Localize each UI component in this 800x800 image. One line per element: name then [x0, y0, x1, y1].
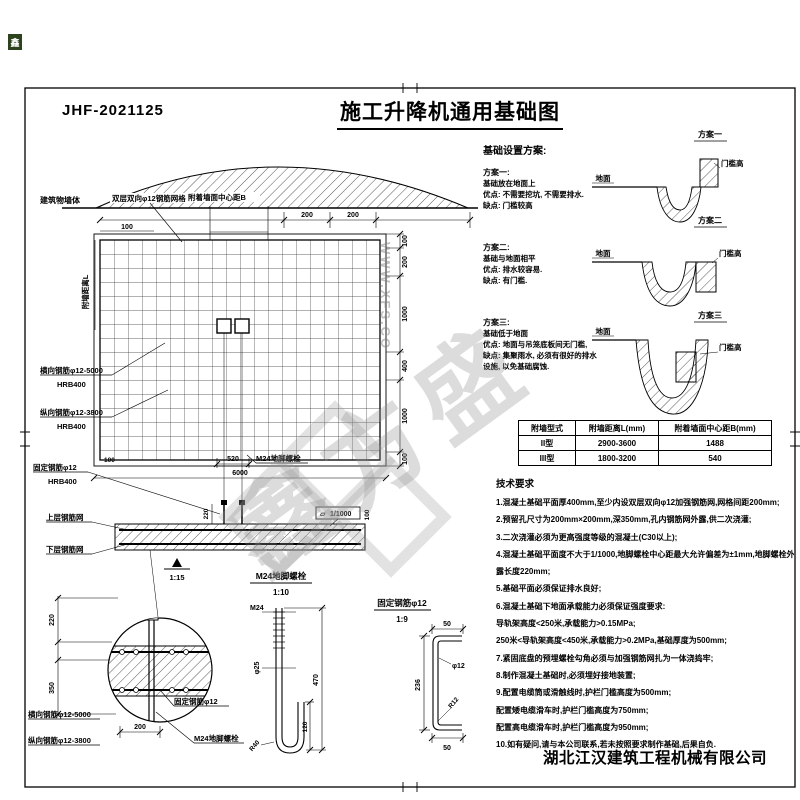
- tech-heading: 技术要求: [496, 476, 794, 490]
- mast-base-plate-left: [217, 319, 231, 333]
- rebar-h-grade: HRB400: [57, 380, 86, 389]
- wall-dist-label: 附墙距离L: [80, 274, 90, 309]
- mast-base-plate-right: [235, 319, 249, 333]
- sketch1-sill-label: 门槛高: [721, 158, 744, 168]
- attachment-table: 附墙型式 附墙距离L(mm) 附着墙面中心距B(mm) II型 2900-360…: [518, 420, 772, 466]
- bolt-hook-dim: 120: [302, 721, 309, 732]
- tech-requirements: 技术要求 1.混凝土基础平面厚400mm,至少内设双层双向φ12加强钢筋网,网格…: [496, 476, 794, 753]
- dim-right-1: 200: [402, 256, 409, 268]
- table-row: II型 2900-3600 1488: [519, 436, 772, 451]
- dim-200: 200: [134, 724, 146, 731]
- rebar-f-grade: HRB400: [48, 477, 77, 486]
- scheme-3-line: 优点: 地面与吊笼底板间无门槛,: [483, 339, 613, 350]
- plan-top-dims: [97, 212, 473, 231]
- plan-view: 建筑物墙体 双层双向φ12钢筋网格 附着墙面中心距B 200 200 100: [33, 167, 478, 520]
- scheme-sketch-1: 方案一 地面 门槛高: [592, 129, 744, 222]
- table-header: 附墙距离L(mm): [576, 421, 659, 436]
- tech-line: 2.预留孔尺寸为200mm×200mm,深350mm,孔内钢筋网外露,供二次浇灌…: [496, 511, 794, 528]
- scheme-2-line: 缺点: 有门槛.: [483, 275, 613, 286]
- scheme-2: 方案二: 基础与地面相平 优点: 排水较容易. 缺点: 有门槛.: [483, 242, 613, 286]
- dim-protrude: 220: [203, 508, 210, 519]
- fix-detail-title: 固定钢筋φ12: [377, 598, 427, 608]
- tech-line: 6.混凝土基础下地面承载能力必须保证强度要求:: [496, 598, 794, 615]
- corner-detail: 220 350 200 横向钢筋φ12-5000 纵向钢筋φ12-3800 固定…: [28, 595, 244, 745]
- wall-label: 建筑物墙体: [39, 195, 81, 205]
- sketch1-title: 方案一: [698, 129, 722, 139]
- center-b-label: 附着墙面中心距B: [188, 192, 246, 202]
- tech-line: 露长度220mm;: [496, 563, 794, 580]
- scheme-2-line: 优点: 排水较容易.: [483, 264, 613, 275]
- mesh-label: 双层双向φ12钢筋网格: [112, 193, 186, 203]
- scheme-3-title: 方案三:: [483, 317, 613, 328]
- upper-mesh-label: 上层钢筋网: [46, 512, 84, 522]
- section-slab: [115, 524, 365, 550]
- center-b-dim: [210, 206, 268, 240]
- table-header: 附墙型式: [519, 421, 576, 436]
- fix-detail-scale: 1:9: [396, 615, 408, 624]
- dim-350: 350: [49, 682, 56, 694]
- section-scale: 1:15: [169, 573, 184, 582]
- tech-line: 1.混凝土基础平面厚400mm,至少内设双层双向φ12加强钢筋网,网格间距200…: [496, 494, 794, 511]
- scheme-3: 方案三: 基础低于地面 优点: 地面与吊笼底板间无门槛, 缺点: 集聚雨水, 必…: [483, 317, 613, 372]
- rebar-grid: [100, 240, 380, 460]
- tech-line: 导轨架高度<250米,承载能力>0.15MPa;: [496, 615, 794, 632]
- tech-line: 3.二次浇灌必须为更高强度等级的混凝土(C30以上);: [496, 529, 794, 546]
- section-view: 220 ▱ 1/1000 100 上层钢筋网 下层钢筋网 1:15: [46, 500, 371, 617]
- tech-line: 配置高电缆滑车时,护栏门槛高度为950mm;: [496, 719, 794, 736]
- fix-height-dim: 236: [415, 679, 422, 691]
- dim-right-2: 1000: [402, 306, 409, 322]
- bolt-height-dim: 470: [313, 674, 320, 686]
- table-cell: II型: [519, 436, 576, 451]
- fix-bottom-dim: 50: [443, 745, 451, 752]
- tech-line: 250米<导轨架高度<450米,承载能力>0.2MPa,基础厚度为500mm;: [496, 632, 794, 649]
- bolt-detail-scale: 1:10: [273, 588, 290, 597]
- rebar-f-label: 固定钢筋φ12: [33, 462, 77, 472]
- scheme-1-line: 缺点: 门槛较高: [483, 200, 613, 211]
- sketch3-sill-label: 门槛高: [719, 342, 742, 352]
- tech-line: 8.制作混凝土基础时,必须埋好接地装置;: [496, 667, 794, 684]
- table-row: III型 1800-3200 540: [519, 451, 772, 466]
- scheme-2-title: 方案二:: [483, 242, 613, 253]
- table-cell: 540: [659, 451, 772, 466]
- scheme-1-line: 基础放在地面上: [483, 178, 613, 189]
- table-cell: 2900-3600: [576, 436, 659, 451]
- table-cell: 1800-3200: [576, 451, 659, 466]
- rebar-v-label: 纵向钢筋φ12-3800: [40, 407, 103, 417]
- corner-rebar-v-label: 纵向钢筋φ12-3800: [28, 735, 91, 745]
- tech-line: 配置矮电缆滑车时,护栏门槛高度为750mm;: [496, 702, 794, 719]
- anchor-nut-left: [221, 500, 227, 505]
- sketch2-soil: [642, 262, 696, 306]
- corner-anchor-label: M24地脚螺栓: [194, 733, 239, 743]
- bolt-threads: [273, 612, 285, 648]
- bolt-radius-dim: R40: [248, 739, 261, 753]
- dim-right-5: 100: [402, 453, 409, 465]
- company-name: 湖北江汉建筑工程机械有限公司: [543, 746, 767, 768]
- fix-top-dim: 50: [443, 621, 451, 628]
- sketch2-title: 方案二: [698, 215, 722, 225]
- dim-right-0: 100: [402, 235, 409, 247]
- anchor-bolt-detail: M24地脚螺栓 1:10 M24 φ25: [248, 571, 326, 753]
- scheme-1-title: 方案一:: [483, 167, 613, 178]
- corner-rebar-h-label: 横向钢筋φ12-5000: [28, 709, 91, 719]
- plan-anchor-label: M24地脚螺栓: [256, 453, 301, 463]
- sketch3-soil: [636, 340, 708, 414]
- scheme-3-line: 缺点: 集聚雨水, 必须有很好的排水: [483, 350, 613, 361]
- dim-right-3: 400: [402, 360, 409, 372]
- sketch1-foundation: [700, 159, 718, 187]
- flatness-symbol: ▱: [319, 511, 326, 518]
- corner-rebar-f-label: 固定钢筋φ12: [174, 696, 218, 706]
- dim-right-4: 1000: [402, 408, 409, 424]
- schemes-heading: 基础设置方案:: [483, 146, 613, 157]
- sketch2-foundation: [696, 262, 716, 292]
- dim-220: 220: [49, 614, 56, 626]
- scheme-3-line: 基础低于地面: [483, 328, 613, 339]
- scheme-sketch-2: 方案二 地面 门槛高: [592, 215, 742, 306]
- sketch2-sill-label: 门槛高: [719, 248, 742, 258]
- tech-line: 7.紧固底盘的预埋螺栓勾角必须与加强钢筋网扎为一体浇捣牢;: [496, 650, 794, 667]
- table-cell: III型: [519, 451, 576, 466]
- flatness-value: 1/1000: [330, 511, 352, 518]
- tech-line: 9.配置电缆筒或滑触线时,护栏门槛高度为500mm;: [496, 684, 794, 701]
- bolt-dia-label: φ25: [254, 661, 261, 674]
- bolt-thread-label: M24: [250, 605, 264, 612]
- dim-overall: 6000: [232, 470, 248, 477]
- rebar-v-grade: HRB400: [57, 422, 86, 431]
- fix-radius-dim: R12: [447, 696, 460, 710]
- sketch1-soil: [657, 187, 701, 222]
- table-cell: 1488: [659, 436, 772, 451]
- lower-mesh-label: 下层钢筋网: [46, 544, 84, 554]
- sketch3-title: 方案三: [698, 310, 722, 320]
- anchor-nut-right: [239, 500, 245, 505]
- scheme-descriptions: 基础设置方案: 方案一: 基础放在地面上 优点: 不需要挖坑, 不需要排水. 缺…: [483, 146, 613, 372]
- dim-bolt-span: 520: [227, 456, 239, 463]
- scheme-1: 方案一: 基础放在地面上 优点: 不需要挖坑, 不需要排水. 缺点: 门槛较高: [483, 167, 613, 211]
- scheme-2-line: 基础与地面相平: [483, 253, 613, 264]
- tech-line: 5.基础平面必须保证排水良好;: [496, 580, 794, 597]
- tech-line: 4.混凝土基础平面度不大于1/1000,地脚螺栓中心距最大允许偏差为±1mm,地…: [496, 546, 794, 563]
- dim-left-edge: 100: [104, 457, 115, 464]
- fix-dia-dim: φ12: [452, 663, 465, 670]
- scheme-3-line: 设施, 以免基础腐蚀.: [483, 361, 613, 372]
- drawing-sheet: 鑫 建筑物墙体 双层双向φ12钢筋网格 附着墙面中心距B: [0, 0, 800, 800]
- scheme-sketch-3: 方案三 地面 门槛高: [592, 310, 742, 414]
- scheme-1-line: 优点: 不需要挖坑, 不需要排水.: [483, 189, 613, 200]
- dim-top-offset: 100: [121, 224, 133, 231]
- dim-top-b: 200: [347, 212, 359, 219]
- table-header-row: 附墙型式 附墙距离L(mm) 附着墙面中心距B(mm): [519, 421, 772, 436]
- sketch3-foundation: [676, 352, 696, 382]
- page-title: 施工升降机通用基础图: [337, 96, 563, 130]
- drawing-number: JHF-2021125: [62, 102, 164, 119]
- rebar-h-label: 横向钢筋φ12-5000: [40, 365, 103, 375]
- fixing-rebar-detail: 固定钢筋φ12 1:9 50 φ12 236 R12 50: [374, 598, 466, 752]
- section-mark-triangle: [172, 558, 182, 567]
- dim-top-a: 200: [301, 212, 313, 219]
- table-header: 附着墙面中心距B(mm): [659, 421, 772, 436]
- dim-flat: 100: [364, 509, 371, 520]
- bolt-detail-title: M24地脚螺栓: [256, 571, 307, 581]
